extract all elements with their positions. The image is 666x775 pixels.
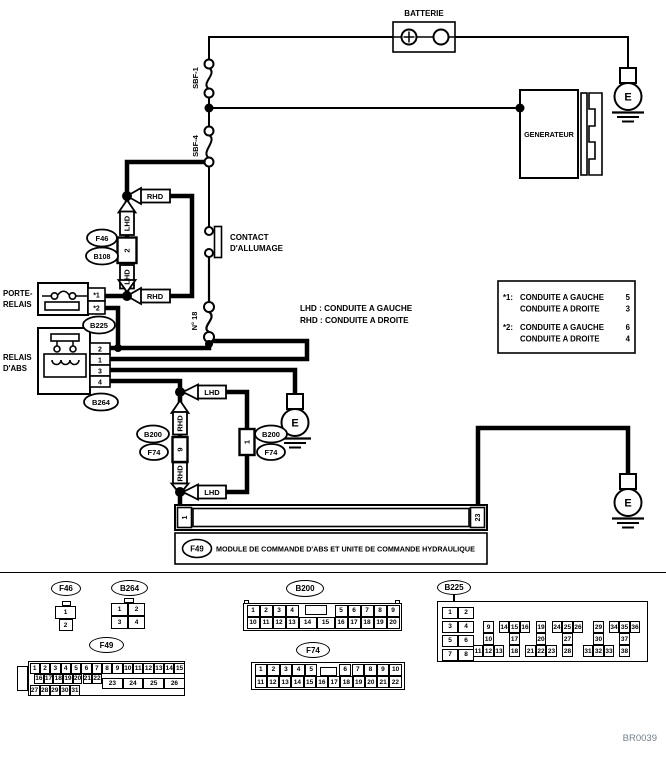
pin-cell: 35: [619, 621, 630, 633]
pin-cell: 30: [593, 633, 604, 645]
pin-cell: 8: [102, 663, 112, 674]
ref-b200: B200: [262, 430, 280, 439]
pin-cell: 5: [442, 635, 458, 647]
legend-entry-2: *2:: [503, 323, 513, 332]
porte-relais-label-1: PORTE-: [3, 289, 33, 298]
pin-cell: 14: [164, 663, 174, 674]
legend-value: 3: [626, 305, 631, 314]
pin-cell: 5: [335, 605, 348, 617]
ground-letter: E: [624, 498, 631, 510]
legend-entry-1: *1:: [503, 293, 513, 302]
pin-cell: 1: [111, 603, 128, 616]
abs-module-symbol: [175, 505, 487, 564]
pin-cell: 1: [55, 606, 76, 619]
pin-cell: 1: [247, 605, 260, 617]
pin-cell: 3: [111, 616, 128, 629]
pin-cell: 8: [458, 649, 474, 661]
pin-cell: 31: [70, 685, 80, 696]
pin-cell: 1: [30, 663, 40, 674]
pin-cell: 4: [128, 616, 145, 629]
pin-cell: 6: [339, 664, 352, 677]
pin-cell: 12: [273, 617, 286, 629]
pin-cell: 28: [562, 645, 573, 657]
pin-cell: 19: [374, 617, 387, 629]
legend-value: 5: [626, 293, 631, 302]
pin-cell: 37: [619, 633, 630, 645]
pin-cell: 3: [280, 664, 293, 677]
pin-cell: 9: [387, 605, 400, 617]
pin-cell: 5: [305, 664, 318, 677]
pin-cell: 13: [494, 645, 505, 657]
ref-b108: B108: [94, 254, 111, 261]
pin-cell: 18: [361, 617, 374, 629]
pin-cell: 23: [102, 678, 123, 689]
pin-cell: 12: [483, 645, 494, 657]
legend-inline-1: LHD : CONDUITE A GAUCHE: [300, 304, 413, 313]
ref-b264: B264: [92, 398, 111, 407]
generator-pulley-icon: [581, 93, 587, 175]
pin-cell: 30: [60, 685, 70, 696]
pin-cell: 33: [604, 645, 615, 657]
f49-key-bracket: [17, 666, 28, 691]
pin-cell: 2: [128, 603, 145, 616]
legend-text: CONDUITE A DROITE: [520, 335, 600, 344]
pin-cell: 26: [164, 678, 185, 689]
pin-cell: 24: [123, 678, 144, 689]
f74-key-bump: [320, 667, 337, 676]
pin-cell: 16: [335, 617, 348, 629]
pin-cell: 2: [458, 607, 474, 619]
pin-cell: 12: [267, 676, 279, 688]
pin-cell: 11: [133, 663, 143, 674]
pin-cell: 11: [255, 676, 267, 688]
pin-cell: 3: [273, 605, 286, 617]
pin-cell: 20: [387, 617, 400, 629]
pin-cell: 3: [442, 621, 458, 633]
pin-cell: 10: [389, 664, 402, 677]
pin-cell: 27: [562, 633, 573, 645]
legend-text: CONDUITE A GAUCHE: [520, 293, 604, 302]
relais-abs-label-2: D'ABS: [3, 364, 27, 373]
conn-pin-label: 2: [123, 248, 132, 252]
module-pin-right-label: 23: [475, 514, 482, 522]
relay-pin-label: 1: [98, 357, 102, 364]
rhd-label: RHD: [176, 415, 185, 432]
pin-cell: 20: [365, 676, 377, 688]
sbf4-label: SBF-4: [191, 134, 200, 156]
terminal-1-label: *1: [93, 292, 100, 299]
pin-cell: 14: [291, 676, 303, 688]
pin-cell: 22: [389, 676, 401, 688]
battery-symbol: [393, 22, 455, 52]
pin-cell: 7: [442, 649, 458, 661]
pin-cell: 17: [328, 676, 340, 688]
upper-branch-arrows: [118, 188, 171, 304]
pin-cell: 14: [299, 617, 317, 629]
ref-b200: B200: [144, 430, 162, 439]
pin-cell: 13: [286, 617, 299, 629]
pin-cell: 23: [546, 645, 557, 657]
lhd-label: LHD: [123, 215, 132, 231]
legend-inline-2: RHD : CONDUITE A DROITE: [300, 316, 409, 325]
relay-pin-label: 3: [98, 368, 102, 375]
pin-cell: 22: [92, 674, 102, 685]
ref-f74: F74: [148, 448, 162, 457]
pin-cell: 13: [279, 676, 291, 688]
lhd-arrow-icon: [183, 385, 198, 400]
pin-cell: 38: [619, 645, 630, 657]
section-divider: [0, 572, 666, 573]
pin-cell: 6: [458, 635, 474, 647]
pin-cell: 10: [247, 617, 260, 629]
pin-cell: 9: [377, 664, 390, 677]
ref-f74: F74: [265, 448, 279, 457]
pin-cell: 15: [317, 617, 335, 629]
relay-pin-label: 4: [98, 379, 102, 386]
pin-cell: 10: [123, 663, 133, 674]
pin-cell: 16: [34, 674, 44, 685]
module-pin-left-label: 1: [182, 515, 189, 519]
pin-cell: 27: [30, 685, 40, 696]
pin-cell: 2: [59, 619, 73, 631]
pin-cell: 11: [473, 645, 484, 657]
generator-label: GENERATEUR: [524, 130, 575, 139]
pinout-f49-ref: F49: [89, 637, 124, 653]
pin-cell: 4: [61, 663, 71, 674]
pin-cell: 25: [143, 678, 164, 689]
rhd-label: RHD: [147, 192, 164, 201]
pin-cell: 1: [442, 607, 458, 619]
porte-relais-label-2: RELAIS: [3, 300, 32, 309]
pin-cell: 17: [509, 633, 520, 645]
pin-cell: 21: [525, 645, 536, 657]
pin-cell: 20: [73, 674, 83, 685]
pin-cell: 4: [286, 605, 299, 617]
ground-letter: E: [624, 92, 631, 104]
pin-cell: 2: [260, 605, 273, 617]
fuse18-label: N° 18: [190, 312, 199, 331]
pin-cell: 24: [552, 621, 563, 633]
pin-cell: 29: [593, 621, 604, 633]
pin-cell: 4: [458, 621, 474, 633]
sbf1-label: SBF-1: [191, 67, 200, 89]
ref-b225: B225: [90, 321, 108, 330]
b200-key-bump: [305, 605, 327, 615]
rhd-label: RHD: [176, 465, 185, 482]
pin-cell: 31: [583, 645, 594, 657]
fuse-no18-icon: [204, 302, 214, 342]
pin-cell: 18: [53, 674, 63, 685]
pin-cell: 21: [83, 674, 93, 685]
pin-cell: 1: [255, 664, 268, 677]
relay-pin-label: 2: [98, 346, 102, 353]
pin-cell: 16: [316, 676, 328, 688]
pin-cell: 12: [143, 663, 153, 674]
fusible-link-sbf4-icon: [205, 127, 214, 167]
pin-cell: 2: [267, 664, 280, 677]
pin-cell: 26: [573, 621, 584, 633]
pin-cell: 28: [40, 685, 50, 696]
pin-cell: 34: [609, 621, 620, 633]
pin-cell: 36: [630, 621, 641, 633]
pin-cell: 10: [483, 633, 494, 645]
pin-cell: 15: [509, 621, 520, 633]
conn-pin-label: 1: [243, 440, 252, 444]
pinout-f74-ref: F74: [296, 642, 330, 658]
pin-cell: 19: [63, 674, 73, 685]
lhd-label: LHD: [204, 488, 220, 497]
pin-cell: 7: [361, 605, 374, 617]
pin-cell: 25: [562, 621, 573, 633]
fusible-link-sbf1-icon: [205, 60, 214, 98]
legend-text: CONDUITE A DROITE: [520, 305, 600, 314]
pin-cell: 9: [112, 663, 122, 674]
pinout-b225-ref: B225: [437, 580, 471, 595]
pin-cell: 8: [364, 664, 377, 677]
wiring-diagram-page: BATTERIE SBF-1 SBF-4 GENERATEUR E E E CO…: [0, 0, 666, 775]
pin-cell: 5: [71, 663, 81, 674]
pin-cell: 32: [593, 645, 604, 657]
lhd-label: LHD: [123, 269, 132, 285]
pin-cell: 14: [499, 621, 510, 633]
ignition-label-2: D'ALLUMAGE: [230, 244, 284, 253]
rhd-label: RHD: [147, 292, 164, 301]
legend-text: CONDUITE A GAUCHE: [520, 323, 604, 332]
legend-value: 6: [626, 323, 631, 332]
pin-cell: 2: [40, 663, 50, 674]
pin-cell: 17: [44, 674, 54, 685]
terminal-2-label: *2: [93, 305, 100, 312]
legend-value: 4: [626, 335, 631, 344]
pinout-b200-ref: B200: [286, 580, 324, 597]
pin-cell: 19: [353, 676, 365, 688]
pin-cell: 15: [174, 663, 184, 674]
pin-cell: 15: [304, 676, 316, 688]
drawing-code: BR0039: [595, 733, 657, 744]
pin-cell: 7: [352, 664, 365, 677]
pin-cell: 19: [536, 621, 547, 633]
pin-cell: 22: [536, 645, 547, 657]
pin-cell: 13: [154, 663, 164, 674]
pinout-b264-ref: B264: [111, 580, 148, 596]
ignition-switch-icon: [205, 227, 222, 258]
pin-cell: 6: [348, 605, 361, 617]
pinout-f46-ref: F46: [51, 581, 81, 596]
ground-letter: E: [291, 418, 298, 430]
pin-cell: 21: [377, 676, 389, 688]
conn-pin-label: 9: [176, 447, 185, 451]
pin-cell: 16: [520, 621, 531, 633]
pin-cell: 18: [509, 645, 520, 657]
relais-abs-label-1: RELAIS: [3, 353, 32, 362]
pin-cell: 29: [50, 685, 60, 696]
lhd-label: LHD: [204, 388, 220, 397]
battery-label: BATTERIE: [404, 9, 444, 18]
ref-f46: F46: [96, 234, 109, 243]
pin-cell: 17: [348, 617, 361, 629]
pin-cell: 7: [92, 663, 102, 674]
pin-cell: 3: [50, 663, 60, 674]
module-label: MODULE DE COMMANDE D'ABS ET UNITE DE COM…: [216, 545, 475, 554]
wiring-schematic: BATTERIE SBF-1 SBF-4 GENERATEUR E E E CO…: [0, 0, 666, 575]
ignition-label-1: CONTACT: [230, 233, 269, 242]
pin-cell: 18: [340, 676, 352, 688]
battery-negative-terminal-icon: [434, 30, 449, 45]
pin-cell: 9: [483, 621, 494, 633]
pin-cell: 6: [81, 663, 91, 674]
ref-f49: F49: [190, 545, 204, 554]
pin-cell: 20: [536, 633, 547, 645]
pin-cell: 11: [260, 617, 273, 629]
pin-cell: 4: [292, 664, 305, 677]
pin-cell: 8: [374, 605, 387, 617]
